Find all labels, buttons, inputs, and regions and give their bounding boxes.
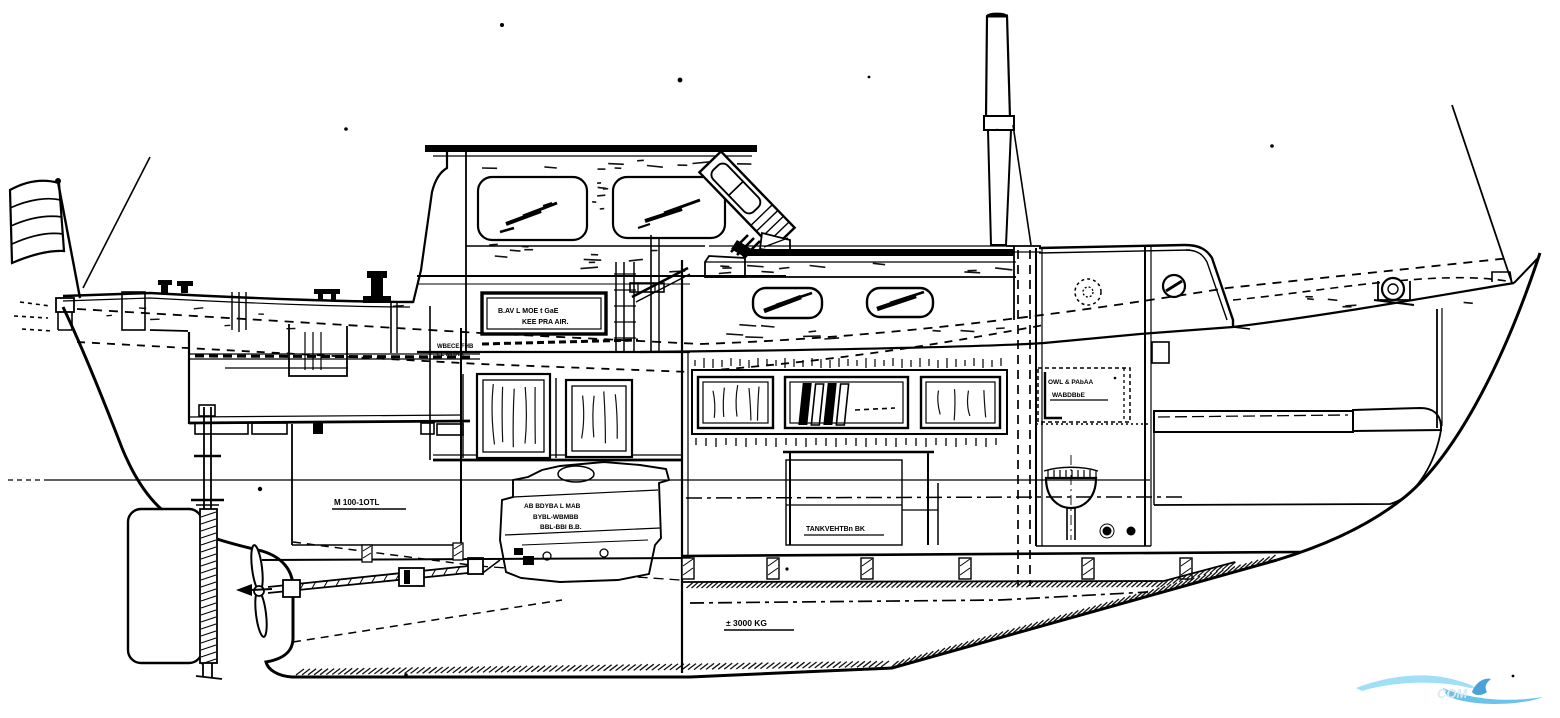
svg-text:COM: COM xyxy=(1437,686,1469,701)
svg-text:± 3000 KG: ± 3000 KG xyxy=(726,618,767,628)
svg-text:TANKVEHTBn BK: TANKVEHTBn BK xyxy=(806,526,865,533)
svg-text:KEE PRA AIR.: KEE PRA AIR. xyxy=(522,319,569,326)
svg-text:WBECE.FHB: WBECE.FHB xyxy=(437,344,474,350)
svg-text:WABDBbE: WABDBbE xyxy=(1052,392,1086,399)
svg-text:B.AV L MOE t GaE: B.AV L MOE t GaE xyxy=(498,308,559,315)
svg-text:OWL & PAbAA: OWL & PAbAA xyxy=(1048,379,1094,386)
svg-text:BYBL-WBMBB: BYBL-WBMBB xyxy=(533,514,579,521)
svg-text:BBL-BBI B.B.: BBL-BBI B.B. xyxy=(540,524,582,531)
svg-text:AB BDYBA L MAB: AB BDYBA L MAB xyxy=(524,503,581,510)
svg-text:M 100-1OTL: M 100-1OTL xyxy=(334,498,379,507)
